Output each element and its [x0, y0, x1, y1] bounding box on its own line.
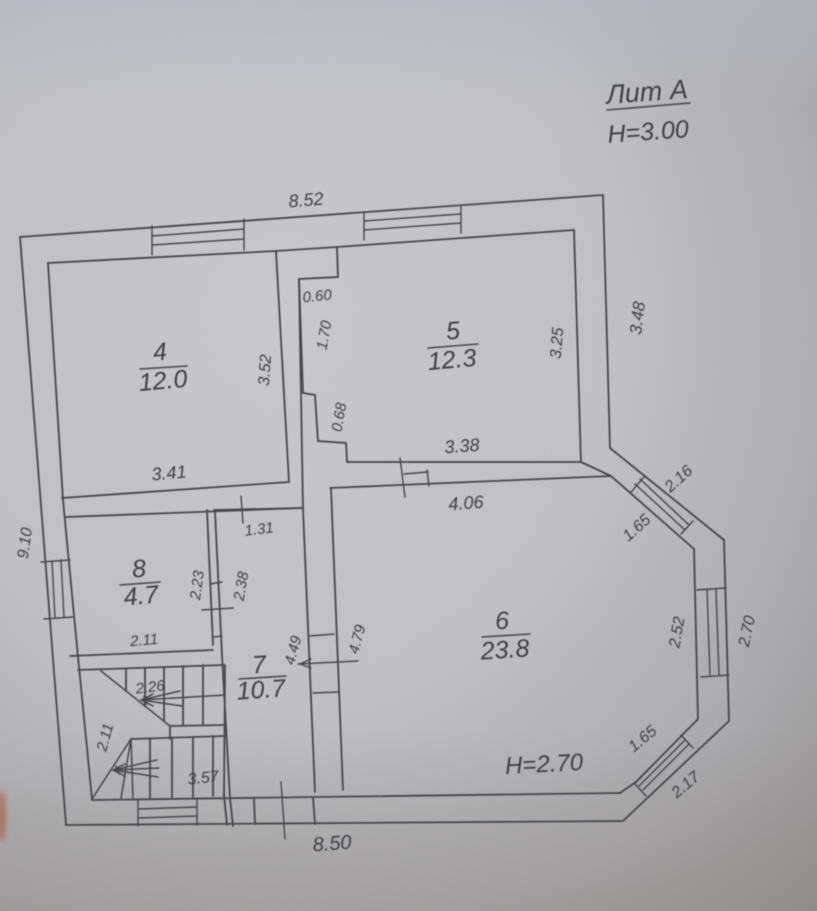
svg-text:10.7: 10.7: [236, 674, 288, 705]
svg-text:3.38: 3.38: [444, 435, 480, 457]
svg-text:1.31: 1.31: [244, 519, 275, 539]
svg-text:12.3: 12.3: [427, 344, 478, 376]
svg-text:8.50: 8.50: [312, 832, 352, 857]
svg-text:4: 4: [152, 337, 168, 366]
svg-text:6: 6: [494, 607, 510, 636]
svg-text:4.7: 4.7: [122, 580, 160, 611]
svg-text:Н=3.00: Н=3.00: [607, 115, 690, 149]
svg-text:0.60: 0.60: [302, 286, 333, 306]
svg-text:3.57: 3.57: [187, 768, 221, 788]
svg-text:3.25: 3.25: [548, 327, 568, 360]
svg-text:8: 8: [131, 554, 147, 583]
svg-text:2.11: 2.11: [128, 631, 158, 650]
svg-text:12.0: 12.0: [138, 365, 189, 397]
svg-text:23.8: 23.8: [479, 634, 531, 665]
svg-text:3.41: 3.41: [151, 462, 188, 485]
svg-text:4.06: 4.06: [448, 492, 485, 514]
svg-text:Лит А: Лит А: [603, 74, 688, 110]
svg-text:H=2.70: H=2.70: [504, 749, 584, 780]
svg-text:5: 5: [445, 316, 461, 345]
svg-text:8.52: 8.52: [288, 189, 325, 212]
svg-text:3.48: 3.48: [626, 300, 649, 336]
svg-text:3.52: 3.52: [256, 354, 275, 386]
